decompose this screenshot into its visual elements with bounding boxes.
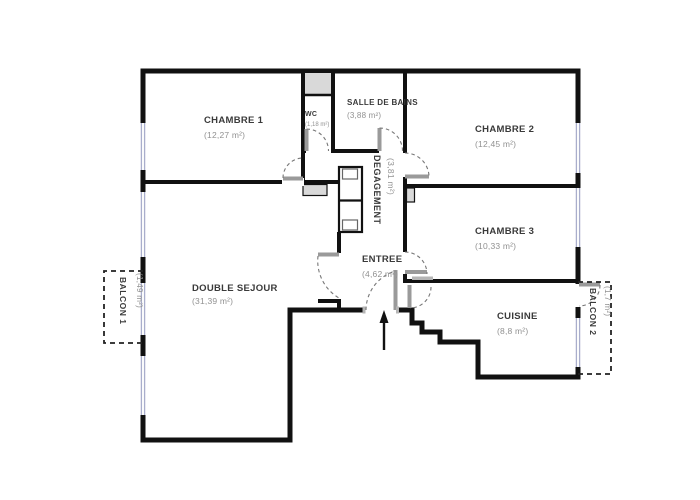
room-label-balcon1-area: (1,49 m²) <box>135 273 144 308</box>
duct-wc <box>305 73 331 94</box>
room-area: (1,18 m²) <box>305 120 329 130</box>
room-label-cuisine: CUISINE (8,8 m²) <box>497 310 538 338</box>
door-leaf-salle-de-bains <box>378 128 382 151</box>
door-leaf-cuisine <box>408 285 412 308</box>
room-label-balcon1-name: BALCON 1 <box>118 277 128 324</box>
room-name: CHAMBRE 1 <box>204 114 263 128</box>
room-area: (3,88 m²) <box>347 109 418 122</box>
door-leaves <box>283 128 600 314</box>
room-area: (4,62 m²) <box>362 267 402 281</box>
room-label-wc: WC (1,18 m²) <box>305 110 329 130</box>
room-name: CHAMBRE 2 <box>475 123 534 137</box>
entrance-jamb-right <box>396 307 399 314</box>
room-label-degagement-area: (3,81 m²) <box>386 158 396 195</box>
room-area: (12,45 m²) <box>475 137 534 151</box>
entrance-jamb-left <box>363 307 366 314</box>
room-label-degagement-name: DEGAGEMENT <box>372 155 382 225</box>
room-area: (31,39 m²) <box>192 295 278 308</box>
room-name: CUISINE <box>497 310 538 324</box>
room-label-balcon2-name: BALCON 2 <box>588 288 598 335</box>
door-leaf-chambre1 <box>283 177 303 181</box>
room-name: CHAMBRE 3 <box>475 225 534 239</box>
door-leaf-sejour <box>318 253 339 257</box>
duct-hall <box>303 185 327 196</box>
door-leaf-chambre2 <box>405 175 429 179</box>
room-name: WC <box>305 110 329 120</box>
room-name: ENTREE <box>362 253 402 267</box>
room-label-chambre3: CHAMBRE 3 (10,33 m²) <box>475 225 534 253</box>
floor-plan-drawing <box>0 0 700 500</box>
room-label-double-sejour: DOUBLE SEJOUR (31,39 m²) <box>192 282 278 308</box>
duct-chambre3 <box>407 188 415 202</box>
closet <box>339 167 362 232</box>
room-name: DOUBLE SEJOUR <box>192 282 278 295</box>
room-label-entree: ENTREE (4,62 m²) <box>362 253 402 281</box>
room-label-chambre2: CHAMBRE 2 (12,45 m²) <box>475 123 534 151</box>
door-leaf-chambre3 <box>405 270 427 274</box>
room-label-balcon2-area: (1,7 m²) <box>603 286 612 316</box>
door-leaf-balcon2 <box>579 283 600 287</box>
door-leaf-wc <box>305 129 309 151</box>
kitchen-jamb <box>412 277 433 281</box>
room-area: (10,33 m²) <box>475 239 534 253</box>
room-area: (12,27 m²) <box>204 128 263 142</box>
room-label-chambre1: CHAMBRE 1 (12,27 m²) <box>204 114 263 142</box>
room-area: (8,8 m²) <box>497 324 538 338</box>
room-label-salle-de-bains: SALLE DE BAINS (3,88 m²) <box>347 96 418 122</box>
entrance-arrow-icon <box>380 310 389 350</box>
room-name: SALLE DE BAINS <box>347 96 418 109</box>
closet-door-bottom <box>343 220 358 230</box>
closet-door-top <box>343 169 358 179</box>
floor-plan-page: CHAMBRE 1 (12,27 m²) CHAMBRE 2 (12,45 m²… <box>0 0 700 500</box>
